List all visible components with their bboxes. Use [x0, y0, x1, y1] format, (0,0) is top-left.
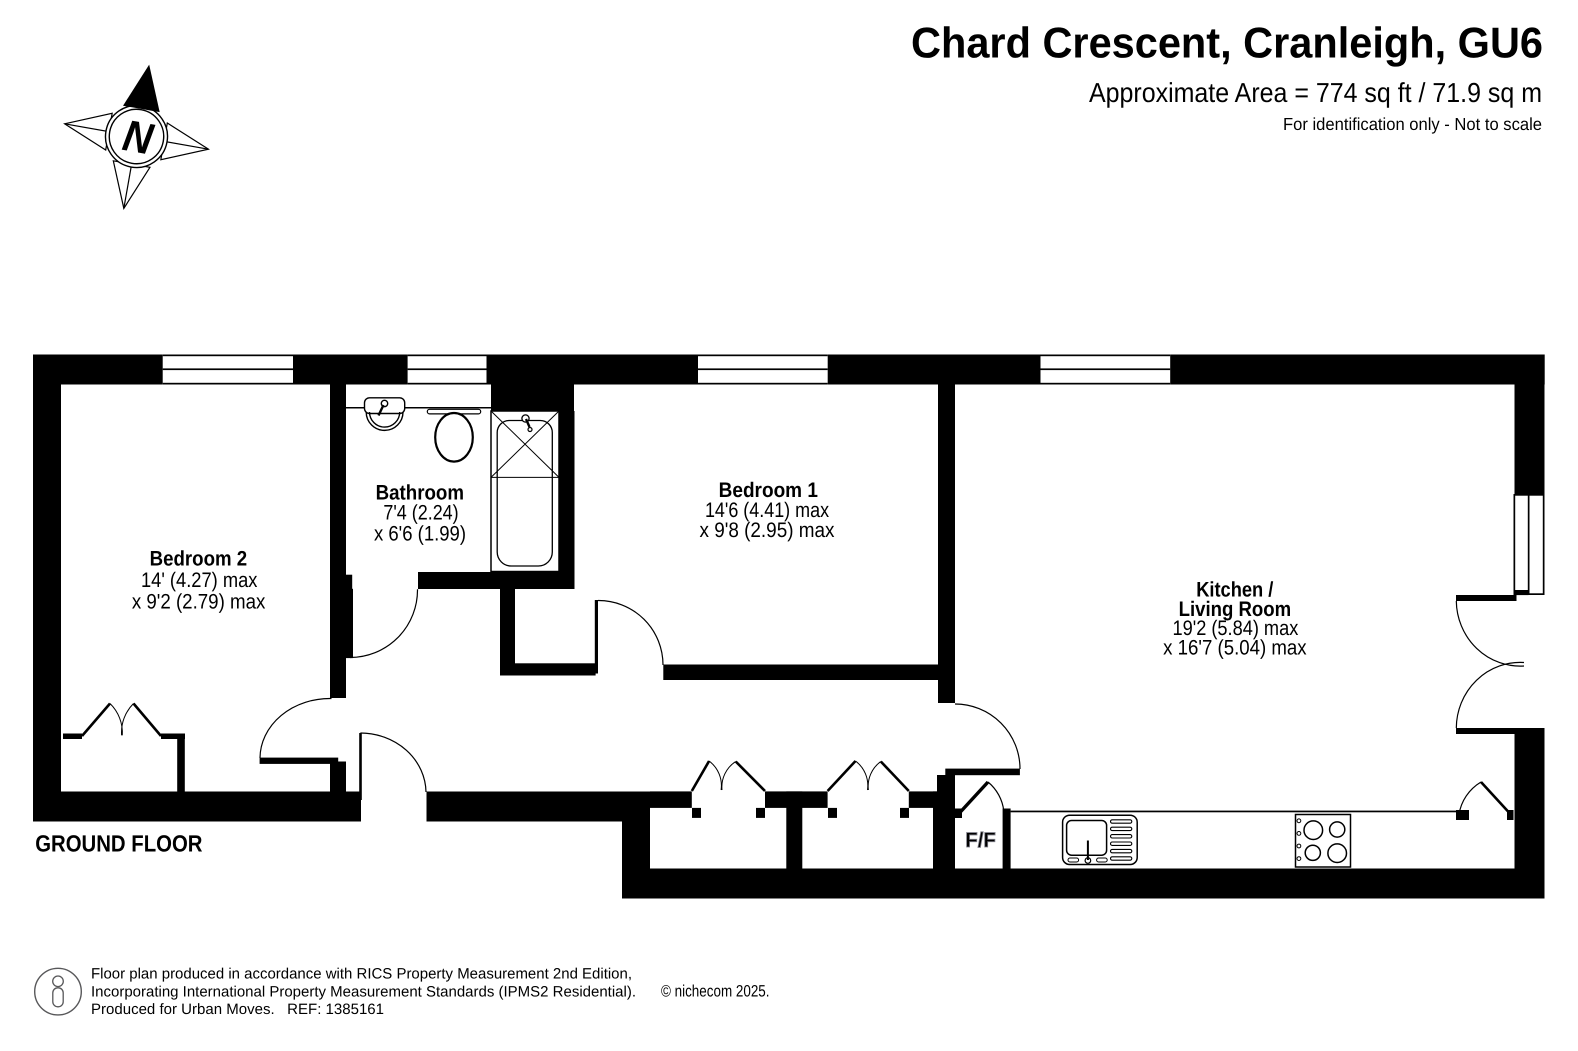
- svg-text:Incorporating International Pr: Incorporating International Property Mea…: [91, 984, 636, 1001]
- svg-text:Approximate Area = 774 sq ft /: Approximate Area = 774 sq ft / 71.9 sq m: [1089, 77, 1542, 108]
- svg-text:F/F: F/F: [965, 829, 996, 852]
- svg-text:GROUND FLOOR: GROUND FLOOR: [35, 831, 202, 857]
- svg-text:x 6'6 (1.99): x 6'6 (1.99): [374, 523, 466, 546]
- svg-text:Floor plan produced in accorda: Floor plan produced in accordance with R…: [91, 966, 632, 983]
- svg-text:© nichecom 2025.: © nichecom 2025.: [661, 983, 770, 1001]
- svg-text:Bedroom 2: Bedroom 2: [150, 548, 248, 571]
- svg-text:Chard Crescent, Cranleigh, GU6: Chard Crescent, Cranleigh, GU6: [911, 20, 1543, 68]
- svg-text:For identification only - Not: For identification only - Not to scale: [1283, 114, 1542, 134]
- svg-text:14' (4.27) max: 14' (4.27) max: [141, 569, 258, 592]
- svg-text:x 9'8 (2.95) max: x 9'8 (2.95) max: [700, 519, 835, 542]
- svg-text:x 9'2 (2.79) max: x 9'2 (2.79) max: [132, 591, 266, 614]
- svg-text:x 16'7 (5.04) max: x 16'7 (5.04) max: [1163, 637, 1307, 660]
- svg-text:Produced for Urban Moves. RE: Produced for Urban Moves. REF: 1385161: [91, 1001, 384, 1018]
- svg-text:7'4 (2.24): 7'4 (2.24): [383, 502, 458, 525]
